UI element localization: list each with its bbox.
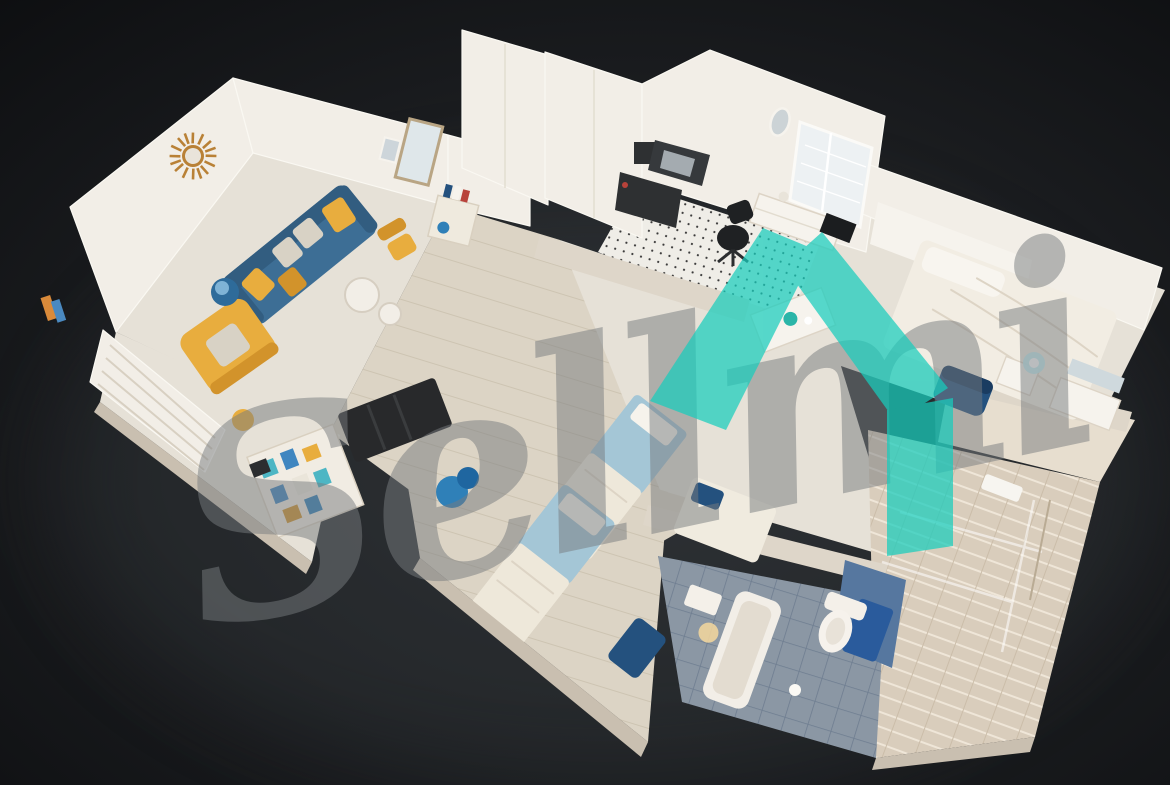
- logo-leg-bar: [887, 398, 953, 556]
- dollhouse-3d-model[interactable]: Sellmi: [0, 0, 1170, 785]
- blue-lamp-stool: [211, 278, 239, 306]
- toilet-paper-roll: [789, 684, 801, 696]
- round-coffee-table: [345, 278, 379, 312]
- dollhouse-viewport: Sellmi: [0, 0, 1170, 785]
